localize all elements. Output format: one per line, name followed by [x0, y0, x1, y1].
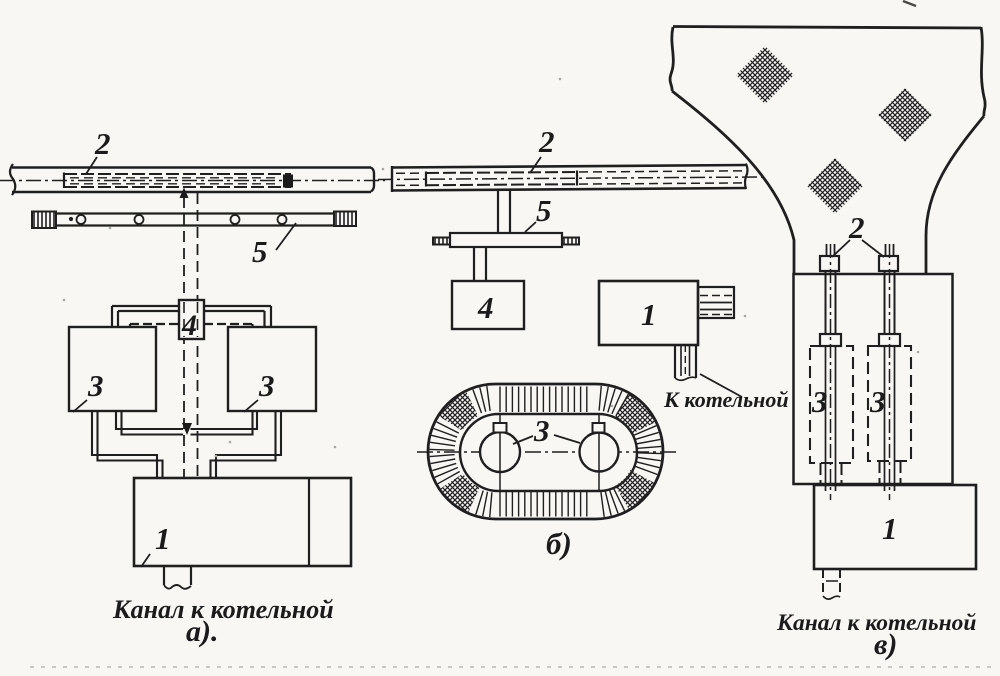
svg-text:5: 5: [252, 234, 268, 269]
svg-text:в): в): [874, 628, 897, 661]
svg-text:3: 3: [869, 384, 886, 419]
svg-text:б): б): [546, 526, 572, 561]
svg-text:2: 2: [538, 124, 555, 159]
svg-text:3: 3: [258, 368, 275, 403]
svg-text:1: 1: [641, 297, 657, 332]
svg-text:1: 1: [882, 511, 898, 546]
svg-text:Канал к котельной: Канал к котельной: [112, 595, 334, 624]
svg-text:3: 3: [533, 413, 550, 448]
svg-text:3: 3: [87, 368, 104, 403]
svg-text:4: 4: [181, 309, 197, 342]
svg-text:2: 2: [848, 210, 865, 245]
svg-text:а).: а).: [186, 615, 219, 648]
svg-text:5: 5: [536, 193, 552, 228]
svg-text:1: 1: [155, 521, 171, 556]
svg-text:2: 2: [94, 126, 111, 161]
svg-text:К котельной: К котельной: [663, 387, 789, 412]
svg-text:4: 4: [477, 290, 494, 325]
